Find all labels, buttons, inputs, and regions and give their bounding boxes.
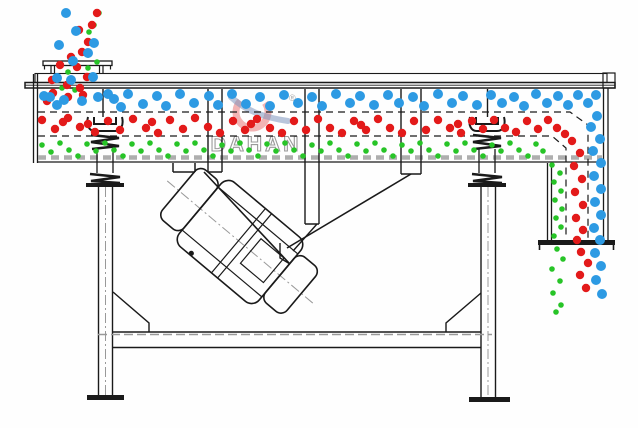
green-particle [559,206,565,212]
blue-particle [519,101,529,111]
gusset-right [446,293,481,332]
red-particle [88,21,96,29]
red-particle [326,124,334,132]
green-particle [557,170,563,176]
green-particle [165,153,171,159]
blue-particle [307,92,317,102]
red-particle [142,124,150,132]
green-particle [183,148,189,154]
red-particle [93,9,101,17]
red-particle [148,118,156,126]
red-particle [229,117,237,125]
green-particle [246,147,252,153]
blue-particle [592,111,602,121]
blue-particle [486,90,496,100]
green-particle [453,148,459,154]
red-particle [576,271,584,279]
chute-flange-ticks [540,245,614,250]
green-particle [462,140,468,146]
blue-particle [419,101,429,111]
green-particle [75,153,81,159]
red-particle [191,114,199,122]
red-particle [216,129,224,137]
blue-particle [204,91,214,101]
red-particle [584,259,592,267]
red-particle [576,149,584,157]
blue-particle [66,75,76,85]
green-particle [489,142,495,148]
red-particle [561,130,569,138]
green-particle [533,141,539,147]
red-particle [84,120,92,128]
blue-particle [563,100,573,110]
red-particle [490,116,498,124]
red-particle [51,125,59,133]
gusset-left [113,292,149,332]
red-particle [479,125,487,133]
green-particle [94,59,100,65]
blue-particle [345,98,355,108]
blue-particle [408,92,418,102]
green-particle [111,147,117,153]
red-particle [457,129,465,137]
red-particle [386,124,394,132]
red-particle [38,116,46,124]
red-particle [166,116,174,124]
red-particle [446,124,454,132]
green-particle [318,148,324,154]
red-particle [266,124,274,132]
blue-particle [39,91,49,101]
blue-particle [597,289,607,299]
blue-particle [589,223,599,233]
red-particle [179,125,187,133]
green-particle [551,179,557,185]
blue-particle [255,92,265,102]
green-particle [174,141,180,147]
green-particle [550,290,556,296]
red-particle [56,61,64,69]
blue-particle [116,102,126,112]
green-particle [354,141,360,147]
red-particle [579,226,587,234]
green-particle [66,147,72,153]
green-particle [551,233,557,239]
red-particle [553,124,561,132]
green-particle [291,147,297,153]
green-particle [408,148,414,154]
blue-particle [152,91,162,101]
green-particle [557,278,563,284]
motor-mount-bracket [173,163,195,172]
blue-particle [433,89,443,99]
green-particle [372,140,378,146]
red-particle [241,126,249,134]
red-particle [154,129,162,137]
red-particle [64,114,72,122]
red-particle [422,126,430,134]
red-particle [544,116,552,124]
blue-particle [596,158,606,168]
green-particle [560,256,566,262]
chute-left-wall [548,163,552,240]
vibrating-screen-diagram: ® DAHAN [0,0,638,428]
green-particle [282,140,288,146]
red-particle [570,162,578,170]
green-particle [93,148,99,154]
green-particle [553,309,559,315]
green-particle [390,153,396,159]
blue-particle [509,92,519,102]
red-particle [454,120,462,128]
blue-particle [109,94,119,104]
motor-end-cap-left [158,165,222,234]
blue-particle [293,98,303,108]
blue-particle [596,261,606,271]
red-particle [579,201,587,209]
blue-particle [138,99,148,109]
blue-particle [591,90,601,100]
motor-axis-centerline [167,181,313,303]
red-particle [501,124,509,132]
hanger-brace [293,224,317,251]
blue-particle [369,100,379,110]
blue-particle [588,146,598,156]
red-particle [410,117,418,125]
green-particle [507,140,513,146]
blue-particle [383,90,393,100]
blue-particle [161,101,171,111]
blue-particle [189,98,199,108]
red-particle [577,248,585,256]
cover-right-end-cap [603,73,615,88]
red-particle [290,117,298,125]
blue-particle [472,100,482,110]
red-particle [362,126,370,134]
red-particle [374,115,382,123]
green-particle [327,140,333,146]
green-particle [336,147,342,153]
green-particle [498,148,504,154]
vibration-motor [140,149,340,336]
red-particle [302,126,310,134]
red-particle [129,115,137,123]
green-particle [540,148,546,154]
green-particle [549,266,555,272]
red-particle [91,128,99,136]
blue-particle [89,38,99,48]
blue-particle [553,91,563,101]
red-particle [398,129,406,137]
red-particle [534,125,542,133]
blue-particle [52,73,62,83]
blue-particle [589,171,599,181]
blue-particle [595,235,605,245]
blue-particle [590,197,600,207]
green-particle [300,153,306,159]
green-particle [558,302,564,308]
red-particle [573,236,581,244]
green-particle [264,141,270,147]
support-frame [87,187,510,400]
green-particle [525,153,531,159]
green-particle [57,140,63,146]
green-particle [156,147,162,153]
blue-particle [265,101,275,111]
blue-particle [241,99,251,109]
blue-particle [88,72,98,82]
blue-particle [596,184,606,194]
motor-bolt [188,250,195,257]
green-particle [48,149,54,155]
green-particle [102,140,108,146]
green-particle [65,69,71,75]
spring-coil-lower-left [90,174,120,183]
red-particle [204,123,212,131]
spring-coil-upper-right [473,135,501,149]
green-particle [219,142,225,148]
blue-particle [583,98,593,108]
red-particle [578,175,586,183]
green-particle [85,65,91,71]
green-particle [120,153,126,159]
blue-particle [542,98,552,108]
green-particle [192,140,198,146]
red-particle [338,129,346,137]
green-particle [558,188,564,194]
red-particle [76,123,84,131]
spring-coil-lower-right [472,174,502,183]
blue-particle [394,98,404,108]
green-particle [417,140,423,146]
green-particle [471,147,477,153]
blue-particle [227,89,237,99]
green-particle [426,147,432,153]
red-particle [253,115,261,123]
green-particle [480,153,486,159]
red-particles [38,9,592,292]
red-particle [568,137,576,145]
green-particle [201,147,207,153]
blue-particle [213,100,223,110]
blue-particle [573,90,583,100]
blue-particle [52,100,62,110]
green-particle [228,148,234,154]
blue-particle [54,40,64,50]
red-particle [571,188,579,196]
spring-rods-right [479,149,495,173]
blue-particle [355,91,365,101]
green-particle [516,147,522,153]
red-particle [572,214,580,222]
blue-particle [279,90,289,100]
green-particle [84,141,90,147]
blue-particle [83,48,93,58]
blue-particle [595,134,605,144]
green-particle [552,197,558,203]
blue-particle [175,89,185,99]
screen-box [34,74,609,240]
green-particle [554,246,560,252]
blue-particle [531,89,541,99]
green-particle [86,29,92,35]
blue-particle [497,98,507,108]
green-particle [129,141,135,147]
green-particle [255,153,261,159]
diagram-canvas: ® DAHAN [0,0,638,428]
spring-rods-left [97,149,113,173]
green-particle [399,142,405,148]
blue-particle [447,98,457,108]
blue-particle [71,26,81,36]
red-particle [512,128,520,136]
green-particle [309,142,315,148]
red-particle [116,126,124,134]
green-particle [435,153,441,159]
red-particle [582,284,590,292]
green-particle [273,148,279,154]
red-particle [314,115,322,123]
red-particle [523,117,531,125]
green-particle [345,153,351,159]
blue-particle [123,89,133,99]
blue-particle [591,275,601,285]
motor-weight-block [240,239,284,283]
green-particle [381,147,387,153]
blue-particle [331,89,341,99]
blue-particle [61,8,71,18]
green-particle [138,148,144,154]
green-particle [237,140,243,146]
blue-particle [596,210,606,220]
red-particle [104,117,112,125]
green-particle [553,215,559,221]
red-particle [278,129,286,137]
green-particle [549,162,555,168]
green-particle [39,142,45,148]
blue-particle [590,248,600,258]
green-particle [147,140,153,146]
green-particle [363,148,369,154]
blue-particle [458,91,468,101]
green-particle [558,224,564,230]
top-cover-assembly [25,73,615,88]
blue-particle [586,122,596,132]
red-particle [434,116,442,124]
cover-plate [35,74,607,83]
blue-particle [68,56,78,66]
blue-particle [93,92,103,102]
red-particle [468,117,476,125]
blue-particle [77,96,87,106]
green-particle [444,141,450,147]
blue-particle [317,101,327,111]
green-particle [210,153,216,159]
